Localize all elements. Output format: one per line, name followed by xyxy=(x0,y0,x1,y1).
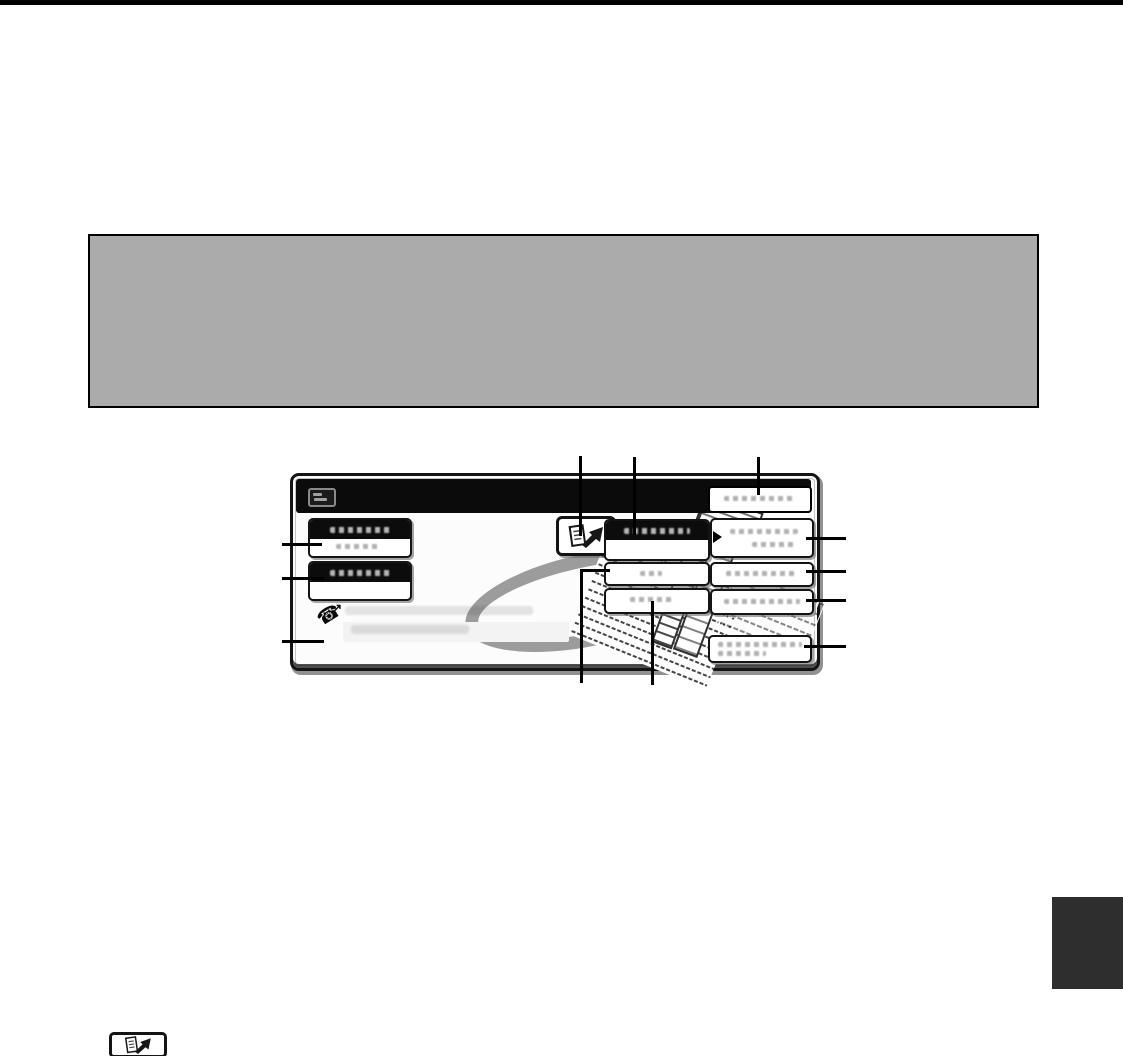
callout-line-right-button-3 xyxy=(806,599,846,602)
illegible-label xyxy=(726,571,798,576)
callout-line-left-button-1 xyxy=(282,543,322,546)
footer-icon-button xyxy=(109,1032,167,1056)
callout-line-bottom-middle-button-2-h xyxy=(580,569,610,572)
page-edge-tab xyxy=(1052,897,1123,989)
callout-line-left-button-2 xyxy=(282,577,324,580)
callout-line-right-button-2 xyxy=(806,570,846,573)
callout-line-bottom-middle-button-2-v xyxy=(580,569,583,683)
right-button-4[interactable] xyxy=(708,635,812,663)
callout-line-phone-hint xyxy=(282,640,324,643)
document-arrow-icon xyxy=(566,524,606,548)
arrow-up-right-icon: ↗ xyxy=(332,602,342,614)
document-arrow-icon xyxy=(119,1036,157,1054)
manual-page: ☎ ↗ xyxy=(0,0,1123,1056)
illegible-label xyxy=(730,529,798,534)
middle-button-1[interactable] xyxy=(604,519,710,561)
right-button-3[interactable] xyxy=(710,589,814,615)
illegible-label xyxy=(640,571,662,576)
illegible-hint-text xyxy=(345,606,533,615)
touch-panel-screen: ☎ ↗ xyxy=(290,473,820,671)
callout-line-right-button-1 xyxy=(806,537,846,540)
left-button-1[interactable] xyxy=(308,518,412,558)
phone-dial-hint: ☎ ↗ xyxy=(317,604,577,648)
illegible-label xyxy=(718,642,802,647)
illegible-label xyxy=(336,544,380,549)
callout-line-top-middle-button xyxy=(633,457,636,535)
right-button-1[interactable] xyxy=(710,518,814,558)
panel-title-bar xyxy=(296,479,811,513)
illegible-label xyxy=(330,527,390,533)
title-bar-button[interactable] xyxy=(708,486,812,513)
middle-button-3[interactable] xyxy=(604,588,710,614)
illegible-hint-text xyxy=(351,625,469,634)
illegible-label xyxy=(718,651,766,656)
callout-line-top-titlebar-button xyxy=(757,457,760,495)
callout-line-right-button-4 xyxy=(804,645,846,648)
illegible-label xyxy=(752,542,796,547)
page-top-rule xyxy=(0,0,1123,5)
right-triangle-marker xyxy=(713,531,722,543)
middle-button-2[interactable] xyxy=(604,562,710,586)
illegible-label xyxy=(724,599,800,604)
illegible-label xyxy=(724,496,796,501)
memory-status-icon xyxy=(308,488,336,507)
callout-line-top-icon-button xyxy=(579,456,582,536)
left-button-2[interactable] xyxy=(308,561,412,601)
right-button-2[interactable] xyxy=(710,562,814,587)
callout-line-bottom-middle-button-3 xyxy=(651,601,654,685)
note-box xyxy=(88,234,1039,408)
illegible-label xyxy=(330,570,390,576)
